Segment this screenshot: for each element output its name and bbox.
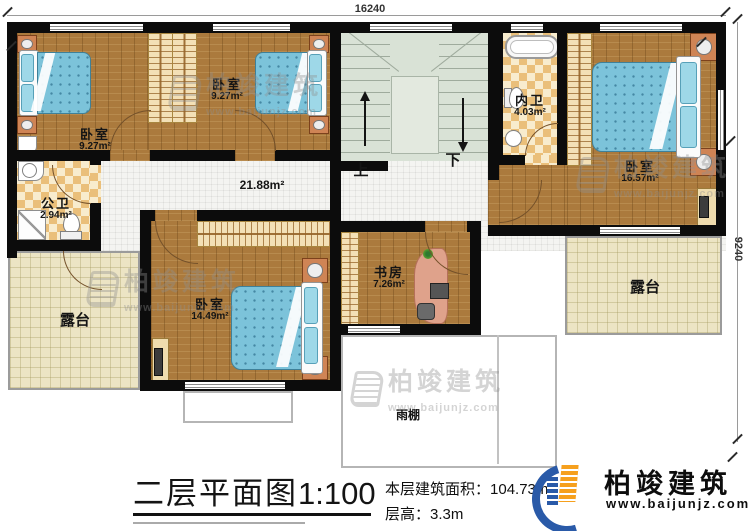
room-label-study: 书房 7.26m² (352, 266, 426, 290)
window (718, 90, 724, 150)
floor-area-label: 本层建筑面积： (385, 481, 490, 498)
floor-area-line: 本层建筑面积：104.73m² (385, 478, 553, 499)
sink (505, 130, 522, 147)
pillow (304, 327, 318, 364)
room-name: 卧室 (187, 78, 267, 92)
wall (470, 221, 481, 335)
nightstand (302, 258, 328, 283)
wall (90, 150, 101, 165)
room-name: 书房 (352, 266, 426, 280)
wardrobe (567, 33, 592, 166)
stairs-up-label: 上 (348, 163, 374, 179)
bathtub (505, 35, 559, 59)
brand-logo-building-orange (558, 465, 578, 502)
dimension-line-top (7, 15, 726, 16)
brand-site: www.baijunjz.com (606, 496, 750, 511)
pillow (304, 287, 318, 324)
room-label-public-bath: 公卫 2.94m² (25, 197, 87, 221)
wall (140, 210, 151, 391)
window (213, 24, 290, 31)
room-area: 4.03m² (497, 108, 563, 119)
terrace-right-label: 露台 (615, 280, 675, 296)
wall (330, 22, 341, 161)
nightstand (17, 116, 37, 134)
stairs-down-label: 下 (440, 153, 466, 169)
room-label-bedroom-right: 卧室 16.57m² (600, 160, 680, 184)
room-name: 卧室 (55, 128, 135, 142)
room-name: 内卫 (497, 94, 563, 108)
room-area: 9.27m² (55, 142, 135, 153)
door-opening (488, 180, 499, 225)
sink (22, 163, 37, 178)
canopy-divider-line (497, 335, 499, 464)
dimension-tick (727, 452, 738, 463)
room-area: 16.57m² (600, 174, 680, 185)
terrace-left-label: 露台 (45, 313, 105, 329)
hallway-area-label: 21.88m² (222, 179, 302, 192)
rain-canopy (341, 335, 557, 468)
tv (699, 196, 709, 218)
window (600, 227, 680, 234)
computer-monitor (430, 283, 449, 299)
pillow (21, 54, 34, 82)
stair-landing (391, 76, 439, 154)
wall (7, 240, 101, 251)
nightstand (309, 116, 329, 134)
wardrobe (197, 221, 331, 247)
window (185, 382, 285, 389)
room-area: 14.49m² (170, 312, 250, 323)
door-opening (90, 165, 101, 203)
brand-logo-building-blue (547, 477, 558, 505)
pillow (680, 62, 697, 104)
title-underline (133, 513, 371, 516)
room-label-bedroom-top-center: 卧室 9.27m² (187, 78, 267, 102)
floor-height-line: 层高：3.3m (385, 503, 463, 524)
door-opening (235, 150, 275, 161)
tv (154, 348, 163, 376)
pillow (680, 106, 697, 148)
drawing-title-text: 二层平面图 (133, 468, 298, 513)
room-name: 卧室 (170, 298, 250, 312)
floor-height-label: 层高： (385, 506, 430, 523)
room-area: 7.26m² (352, 280, 426, 291)
dimension-top-value: 16240 (340, 3, 400, 15)
room-area: 9.27m² (187, 92, 267, 103)
stair-up-arrowhead-icon (360, 91, 370, 101)
window (370, 24, 452, 31)
window (600, 24, 682, 31)
title-underline-2 (133, 522, 305, 524)
stair-down-arrow (462, 98, 464, 142)
room-label-bedroom-top-left: 卧室 9.27m² (55, 128, 135, 152)
bay-window-outline (183, 391, 293, 423)
window (50, 24, 143, 31)
room-label-bedroom-bottom: 卧室 14.49m² (170, 298, 250, 322)
door-opening (155, 210, 197, 221)
wall (7, 22, 17, 258)
room-name: 公卫 (25, 197, 87, 211)
pillow (309, 84, 322, 112)
room-label-inner-bath: 内卫 4.03m² (497, 94, 563, 118)
pillow (309, 54, 322, 82)
wall (488, 165, 499, 180)
drawing-scale: 1:100 (298, 476, 376, 512)
floorplan-page: 卧室 9.27m² 卧室 9.27m² 卧室 16.57m² 内卫 4.03m²… (0, 0, 750, 531)
canopy-label: 雨棚 (383, 409, 433, 422)
door-opening (425, 221, 467, 232)
wardrobe (148, 33, 173, 123)
drawing-title: 二层平面图 1:100 (133, 468, 376, 513)
dimension-right-value: 9240 (732, 229, 744, 269)
window (511, 24, 543, 31)
stair-down-arrowhead-icon (458, 142, 468, 152)
wall (330, 161, 341, 391)
chair (417, 303, 435, 320)
floor-height-value: 3.3m (430, 506, 463, 523)
door-opening (525, 155, 557, 165)
stair-up-arrow (364, 100, 366, 146)
toilet-tank (60, 231, 82, 240)
dimension-tick (725, 136, 736, 147)
window (348, 326, 400, 333)
room-name: 卧室 (600, 160, 680, 174)
room-area: 2.94m² (25, 211, 87, 222)
